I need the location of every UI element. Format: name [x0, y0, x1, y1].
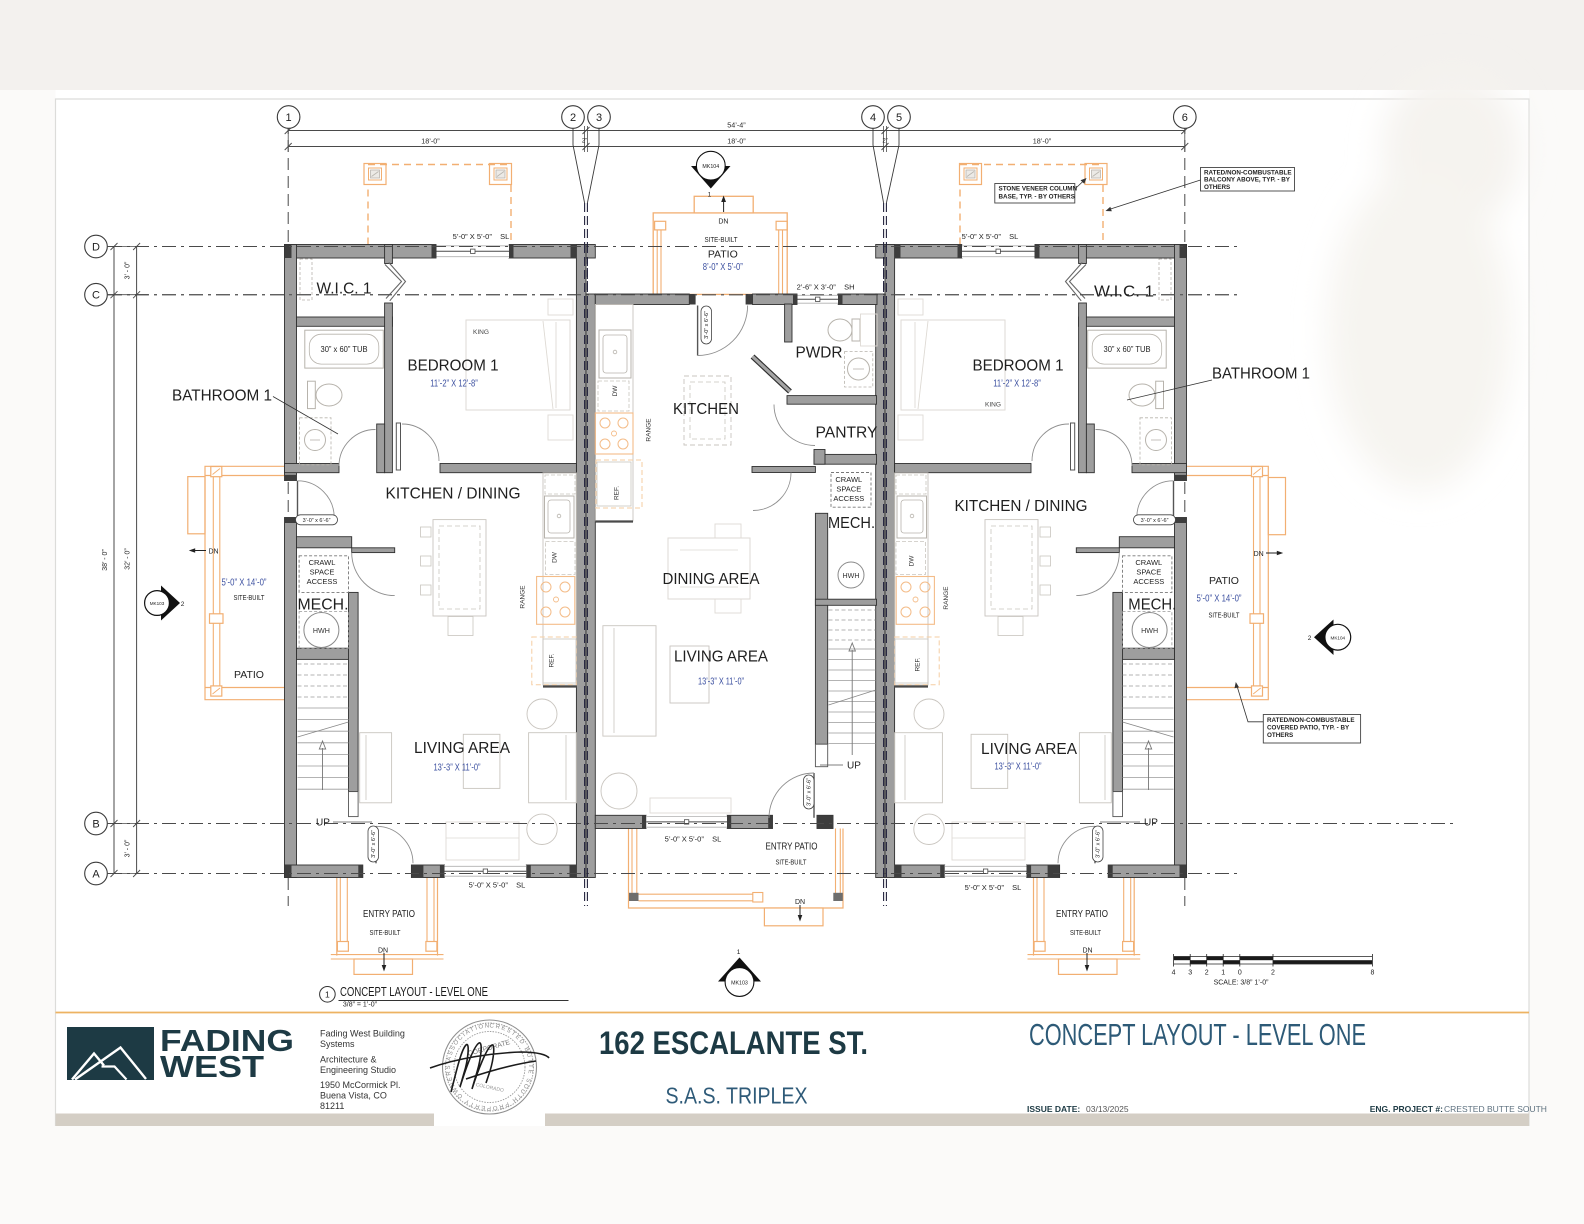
svg-text:11’-2” X 12’-8”: 11’-2” X 12’-8” [430, 379, 478, 390]
svg-text:DW: DW [612, 385, 619, 397]
svg-text:2”: 2” [882, 139, 887, 145]
svg-text:MECH.: MECH. [1128, 597, 1176, 614]
svg-text:MK103: MK103 [731, 980, 748, 986]
svg-text:KITCHEN: KITCHEN [673, 401, 739, 418]
svg-text:MECH.: MECH. [298, 597, 349, 614]
svg-text:SITE-BUILT: SITE-BUILT [1070, 928, 1101, 937]
svg-text:2: 2 [1271, 970, 1275, 977]
svg-text:CRAWL: CRAWL [309, 558, 336, 567]
svg-text:KING: KING [473, 329, 489, 336]
svg-text:5’-0” X 5’-0” SL: 5’-0” X 5’-0” SL [965, 883, 1022, 892]
svg-text:ACCESS: ACCESS [1133, 577, 1164, 586]
svg-text:8’-0” X 5’-0”: 8’-0” X 5’-0” [703, 261, 743, 273]
svg-text:3’-0” x 6’-6”: 3’-0” x 6’-6” [371, 830, 377, 858]
svg-text:DW: DW [552, 551, 559, 563]
svg-text:SITE-BUILT: SITE-BUILT [234, 593, 265, 602]
svg-text:3’-0” x 6’-6”: 3’-0” x 6’-6” [807, 778, 813, 806]
svg-text:ACCESS: ACCESS [307, 577, 338, 586]
svg-text:81211: 81211 [320, 1101, 344, 1111]
svg-text:38’ - 0”: 38’ - 0” [102, 549, 109, 571]
svg-text:RATED/NON-COMBUSTABLE: RATED/NON-COMBUSTABLE [1204, 169, 1292, 176]
svg-text:3’ - 0”: 3’ - 0” [125, 261, 132, 279]
svg-text:MECH.: MECH. [828, 515, 875, 532]
svg-text:18’-0”: 18’-0” [421, 137, 440, 146]
svg-text:REF.: REF. [549, 653, 556, 667]
svg-text:HWH: HWH [1141, 628, 1158, 635]
svg-text:SITE-BUILT: SITE-BUILT [705, 235, 738, 244]
svg-text:DN: DN [718, 219, 728, 226]
svg-text:18’-0”: 18’-0” [727, 137, 746, 146]
svg-text:RANGE: RANGE [520, 585, 527, 609]
svg-text:BEDROOM 1: BEDROOM 1 [973, 358, 1064, 375]
svg-text:1: 1 [286, 112, 292, 124]
svg-text:5’-0” X 14’-0”: 5’-0” X 14’-0” [1197, 593, 1242, 605]
svg-text:REF.: REF. [614, 486, 621, 500]
svg-text:MK103: MK103 [150, 601, 165, 606]
svg-text:5’-0” X 5’-0” SL: 5’-0” X 5’-0” SL [962, 232, 1019, 241]
svg-text:1: 1 [325, 989, 330, 999]
svg-text:D: D [92, 242, 100, 254]
svg-text:PATIO: PATIO [708, 249, 738, 261]
svg-text:RANGE: RANGE [646, 418, 653, 442]
svg-text:DN: DN [378, 948, 388, 955]
svg-text:DN: DN [1254, 551, 1264, 558]
svg-text:SITE-BUILT: SITE-BUILT [370, 928, 401, 937]
svg-text:ENTRY PATIO: ENTRY PATIO [363, 908, 415, 920]
svg-text:ENTRY PATIO: ENTRY PATIO [766, 841, 818, 853]
svg-text:RANGE: RANGE [943, 586, 950, 610]
svg-text:S.A.S. TRIPLEX: S.A.S. TRIPLEX [666, 1083, 808, 1109]
svg-text:3’-0” x 6’-6”: 3’-0” x 6’-6” [1096, 830, 1102, 858]
svg-text:2”: 2” [582, 139, 587, 145]
svg-text:2: 2 [1308, 635, 1312, 642]
svg-text:SITE-BUILT: SITE-BUILT [776, 858, 807, 867]
svg-text:DN: DN [1082, 948, 1092, 955]
svg-text:30” x 60” TUB: 30” x 60” TUB [1104, 345, 1151, 354]
svg-text:11’-2” X 12’-8”: 11’-2” X 12’-8” [993, 379, 1041, 390]
svg-text:DINING AREA: DINING AREA [663, 571, 761, 588]
svg-text:Systems: Systems [320, 1039, 355, 1049]
svg-text:Engineering Studio: Engineering Studio [320, 1065, 396, 1075]
svg-text:REF.: REF. [915, 657, 922, 671]
svg-text:3’ - 0”: 3’ - 0” [125, 839, 132, 857]
svg-text:2’-6” X 3’-0” SH: 2’-6” X 3’-0” SH [797, 283, 855, 292]
svg-text:HWH: HWH [843, 573, 860, 580]
svg-text:WEST: WEST [160, 1049, 264, 1084]
svg-text:2: 2 [570, 112, 576, 124]
svg-text:5’-0” X 14’-0”: 5’-0” X 14’-0” [222, 577, 267, 589]
svg-text:3’-0” x 6’-6”: 3’-0” x 6’-6” [303, 518, 331, 524]
svg-text:1: 1 [1221, 970, 1225, 977]
svg-text:LIVING AREA: LIVING AREA [674, 649, 769, 666]
svg-text:Fading West Building: Fading West Building [320, 1029, 405, 1039]
svg-text:13’-3” X 11’-0”: 13’-3” X 11’-0” [698, 677, 744, 688]
svg-text:4: 4 [1172, 970, 1176, 977]
svg-text:4: 4 [870, 112, 876, 124]
svg-text:1: 1 [708, 192, 712, 199]
svg-text:OTHERS: OTHERS [1204, 184, 1230, 191]
svg-text:PWDR: PWDR [796, 345, 843, 362]
svg-text:B: B [92, 819, 99, 831]
svg-text:CRAWL: CRAWL [835, 475, 862, 484]
svg-text:PATIO: PATIO [1209, 575, 1239, 587]
svg-text:BASE, TYP. - BY OTHERS: BASE, TYP. - BY OTHERS [999, 193, 1075, 200]
svg-text:6: 6 [1182, 112, 1188, 124]
svg-text:KING: KING [985, 402, 1001, 409]
svg-text:30” x 60” TUB: 30” x 60” TUB [321, 345, 368, 354]
svg-text:3/8” = 1’-0”: 3/8” = 1’-0” [343, 1002, 378, 1009]
svg-text:BEDROOM 1: BEDROOM 1 [408, 358, 499, 375]
svg-text:SPACE: SPACE [836, 485, 861, 494]
svg-text:Buena Vista, CO: Buena Vista, CO [320, 1091, 387, 1101]
svg-text:CONCEPT LAYOUT - LEVEL ONE: CONCEPT LAYOUT - LEVEL ONE [1029, 1017, 1366, 1052]
svg-text:18’-0”: 18’-0” [1033, 137, 1052, 146]
svg-text:5’-0” X 5’-0” SL: 5’-0” X 5’-0” SL [453, 232, 510, 241]
svg-text:SPACE: SPACE [1136, 568, 1161, 577]
svg-text:W.I.C. 1: W.I.C. 1 [1094, 284, 1154, 301]
svg-text:LIVING AREA: LIVING AREA [414, 740, 511, 757]
svg-text:ENTRY PATIO: ENTRY PATIO [1056, 908, 1108, 920]
svg-text:32’ - 0”: 32’ - 0” [125, 548, 132, 570]
svg-text:DN: DN [208, 549, 218, 556]
svg-text:UP: UP [1144, 818, 1158, 829]
svg-text:5’-0” X 5’-0” SL: 5’-0” X 5’-0” SL [665, 835, 722, 844]
svg-text:PANTRY: PANTRY [816, 425, 878, 442]
svg-text:SCALE: 3/8” 1’-0”: SCALE: 3/8” 1’-0” [1214, 980, 1270, 987]
svg-text:13’-3” X 11’-0”: 13’-3” X 11’-0” [995, 762, 1042, 773]
svg-text:MK104: MK104 [702, 164, 719, 170]
svg-text:BATHROOM 1: BATHROOM 1 [1212, 366, 1310, 383]
svg-text:SITE-BUILT: SITE-BUILT [1209, 611, 1240, 620]
svg-text:0: 0 [1238, 970, 1242, 977]
svg-text:CRAWL: CRAWL [1135, 558, 1162, 567]
svg-text:3’-0” x 6’-6”: 3’-0” x 6’-6” [1141, 518, 1169, 524]
svg-text:W.I.C. 1: W.I.C. 1 [317, 281, 372, 298]
svg-text:5’-0” X 5’-0” SL: 5’-0” X 5’-0” SL [469, 881, 526, 890]
svg-text:162 ESCALANTE ST.: 162 ESCALANTE ST. [599, 1025, 868, 1061]
svg-text:SPACE: SPACE [310, 568, 335, 577]
svg-text:RATED/NON-COMBUSTABLE: RATED/NON-COMBUSTABLE [1267, 717, 1355, 724]
svg-text:3’-0” x 6’-6”: 3’-0” x 6’-6” [704, 311, 710, 339]
svg-text:LIVING AREA: LIVING AREA [981, 741, 1078, 758]
svg-text:ISSUE DATE:: ISSUE DATE: [1027, 1104, 1080, 1114]
svg-text:KITCHEN / DINING: KITCHEN / DINING [386, 486, 521, 503]
svg-text:3: 3 [1188, 970, 1192, 977]
svg-text:C: C [92, 290, 100, 302]
svg-text:8: 8 [1370, 970, 1374, 977]
svg-text:DW: DW [909, 555, 916, 567]
svg-text:13’-3” X 11’-0”: 13’-3” X 11’-0” [434, 763, 481, 774]
svg-text:BALCONY ABOVE, TYP. - BY: BALCONY ABOVE, TYP. - BY [1204, 177, 1291, 184]
svg-text:KITCHEN / DINING: KITCHEN / DINING [955, 498, 1088, 515]
svg-text:BATHROOM 1: BATHROOM 1 [172, 388, 272, 405]
svg-text:COVERED PATIO, TYP. - BY: COVERED PATIO, TYP. - BY [1267, 724, 1350, 731]
svg-text:OTHERS: OTHERS [1267, 732, 1293, 739]
svg-text:HWH: HWH [313, 628, 330, 635]
svg-text:CRESTED BUTTE SOUTH: CRESTED BUTTE SOUTH [1444, 1104, 1547, 1114]
svg-text:03/13/2025: 03/13/2025 [1086, 1104, 1129, 1114]
svg-text:54’-4”: 54’-4” [727, 121, 746, 130]
svg-text:UP: UP [847, 761, 861, 772]
svg-text:MK104: MK104 [1331, 635, 1346, 640]
svg-text:ACCESS: ACCESS [833, 494, 864, 503]
svg-text:2: 2 [181, 601, 185, 608]
svg-text:5: 5 [896, 112, 902, 124]
svg-text:1: 1 [737, 949, 741, 956]
svg-text:CONCEPT LAYOUT - LEVEL ONE: CONCEPT LAYOUT - LEVEL ONE [340, 984, 488, 999]
svg-text:2: 2 [1205, 970, 1209, 977]
svg-text:UP: UP [316, 818, 330, 829]
svg-text:ENG. PROJECT #:: ENG. PROJECT #: [1370, 1104, 1443, 1114]
svg-text:DN: DN [795, 899, 805, 906]
svg-text:A: A [92, 869, 100, 881]
svg-text:3: 3 [596, 112, 602, 124]
svg-text:1950 McCormick Pl.: 1950 McCormick Pl. [320, 1080, 401, 1090]
svg-text:Architecture &: Architecture & [320, 1055, 377, 1065]
svg-text:STONE VENEER COLUMN: STONE VENEER COLUMN [999, 186, 1078, 193]
svg-text:PATIO: PATIO [234, 669, 264, 681]
